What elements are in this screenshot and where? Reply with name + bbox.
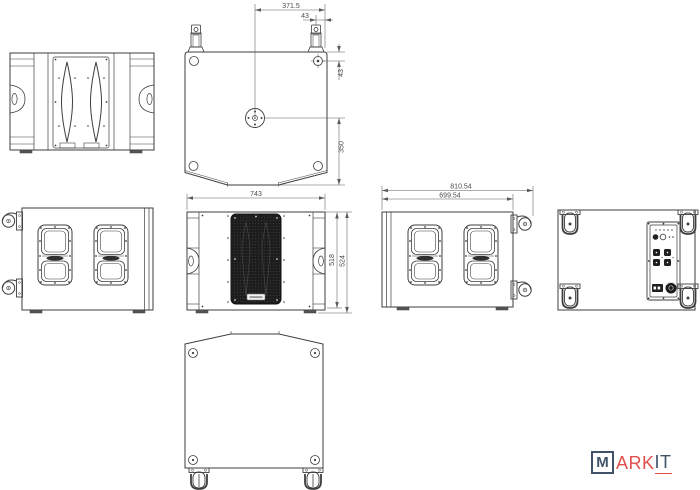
top-view: 371.5 43 43 350 [175, 0, 355, 200]
technical-drawing-canvas: 371.5 43 43 350 [0, 0, 700, 490]
cabinet-outline [185, 334, 323, 468]
amp-panel [647, 222, 680, 300]
grille [231, 214, 281, 304]
dim-label-height-cabinet: 518 [329, 254, 336, 266]
left-side-view [0, 195, 175, 320]
cabinet-outline [382, 212, 513, 307]
markit-logo: M ARK IT [591, 451, 672, 474]
screw-dots [192, 352, 316, 461]
dim-label-height-overall: 524 [340, 255, 347, 267]
dim-label-corner-offset: 43 [338, 69, 345, 77]
cabinet-outline [10, 53, 154, 150]
rigging-bracket [188, 25, 204, 52]
led-indicators [655, 229, 672, 230]
port-lens [62, 62, 73, 142]
dimension-lines [255, 4, 345, 185]
screw-dots [55, 59, 108, 147]
volume-knob [653, 234, 659, 240]
logo-m-box: M [591, 451, 614, 474]
dim-label-bracket-offset: 43 [301, 13, 309, 20]
dim-label-width: 743 [250, 191, 262, 198]
dim-label-half-width: 371.5 [282, 3, 300, 10]
port-lens [91, 62, 102, 142]
front-view-no-grille [8, 48, 158, 158]
bottom-view [173, 330, 337, 490]
dimension-arrows [255, 8, 341, 185]
rear-view [553, 200, 700, 318]
volume-knob [660, 234, 666, 240]
dim-label-depth-cabinet: 699.54 [439, 193, 461, 200]
logo-m: M [596, 454, 609, 471]
logo-ark: ARK [616, 452, 655, 474]
front-view: 743 518 524 [176, 186, 358, 320]
rigging-bracket [308, 25, 324, 52]
dim-label-depth-overall: 810.54 [450, 184, 472, 191]
cabinet-outline [22, 208, 153, 310]
logo-it: IT [655, 451, 672, 474]
cabinet-outline [185, 52, 327, 185]
right-side-view: 810.54 699.54 [372, 178, 542, 320]
dim-label-pole-to-front: 350 [339, 141, 346, 153]
